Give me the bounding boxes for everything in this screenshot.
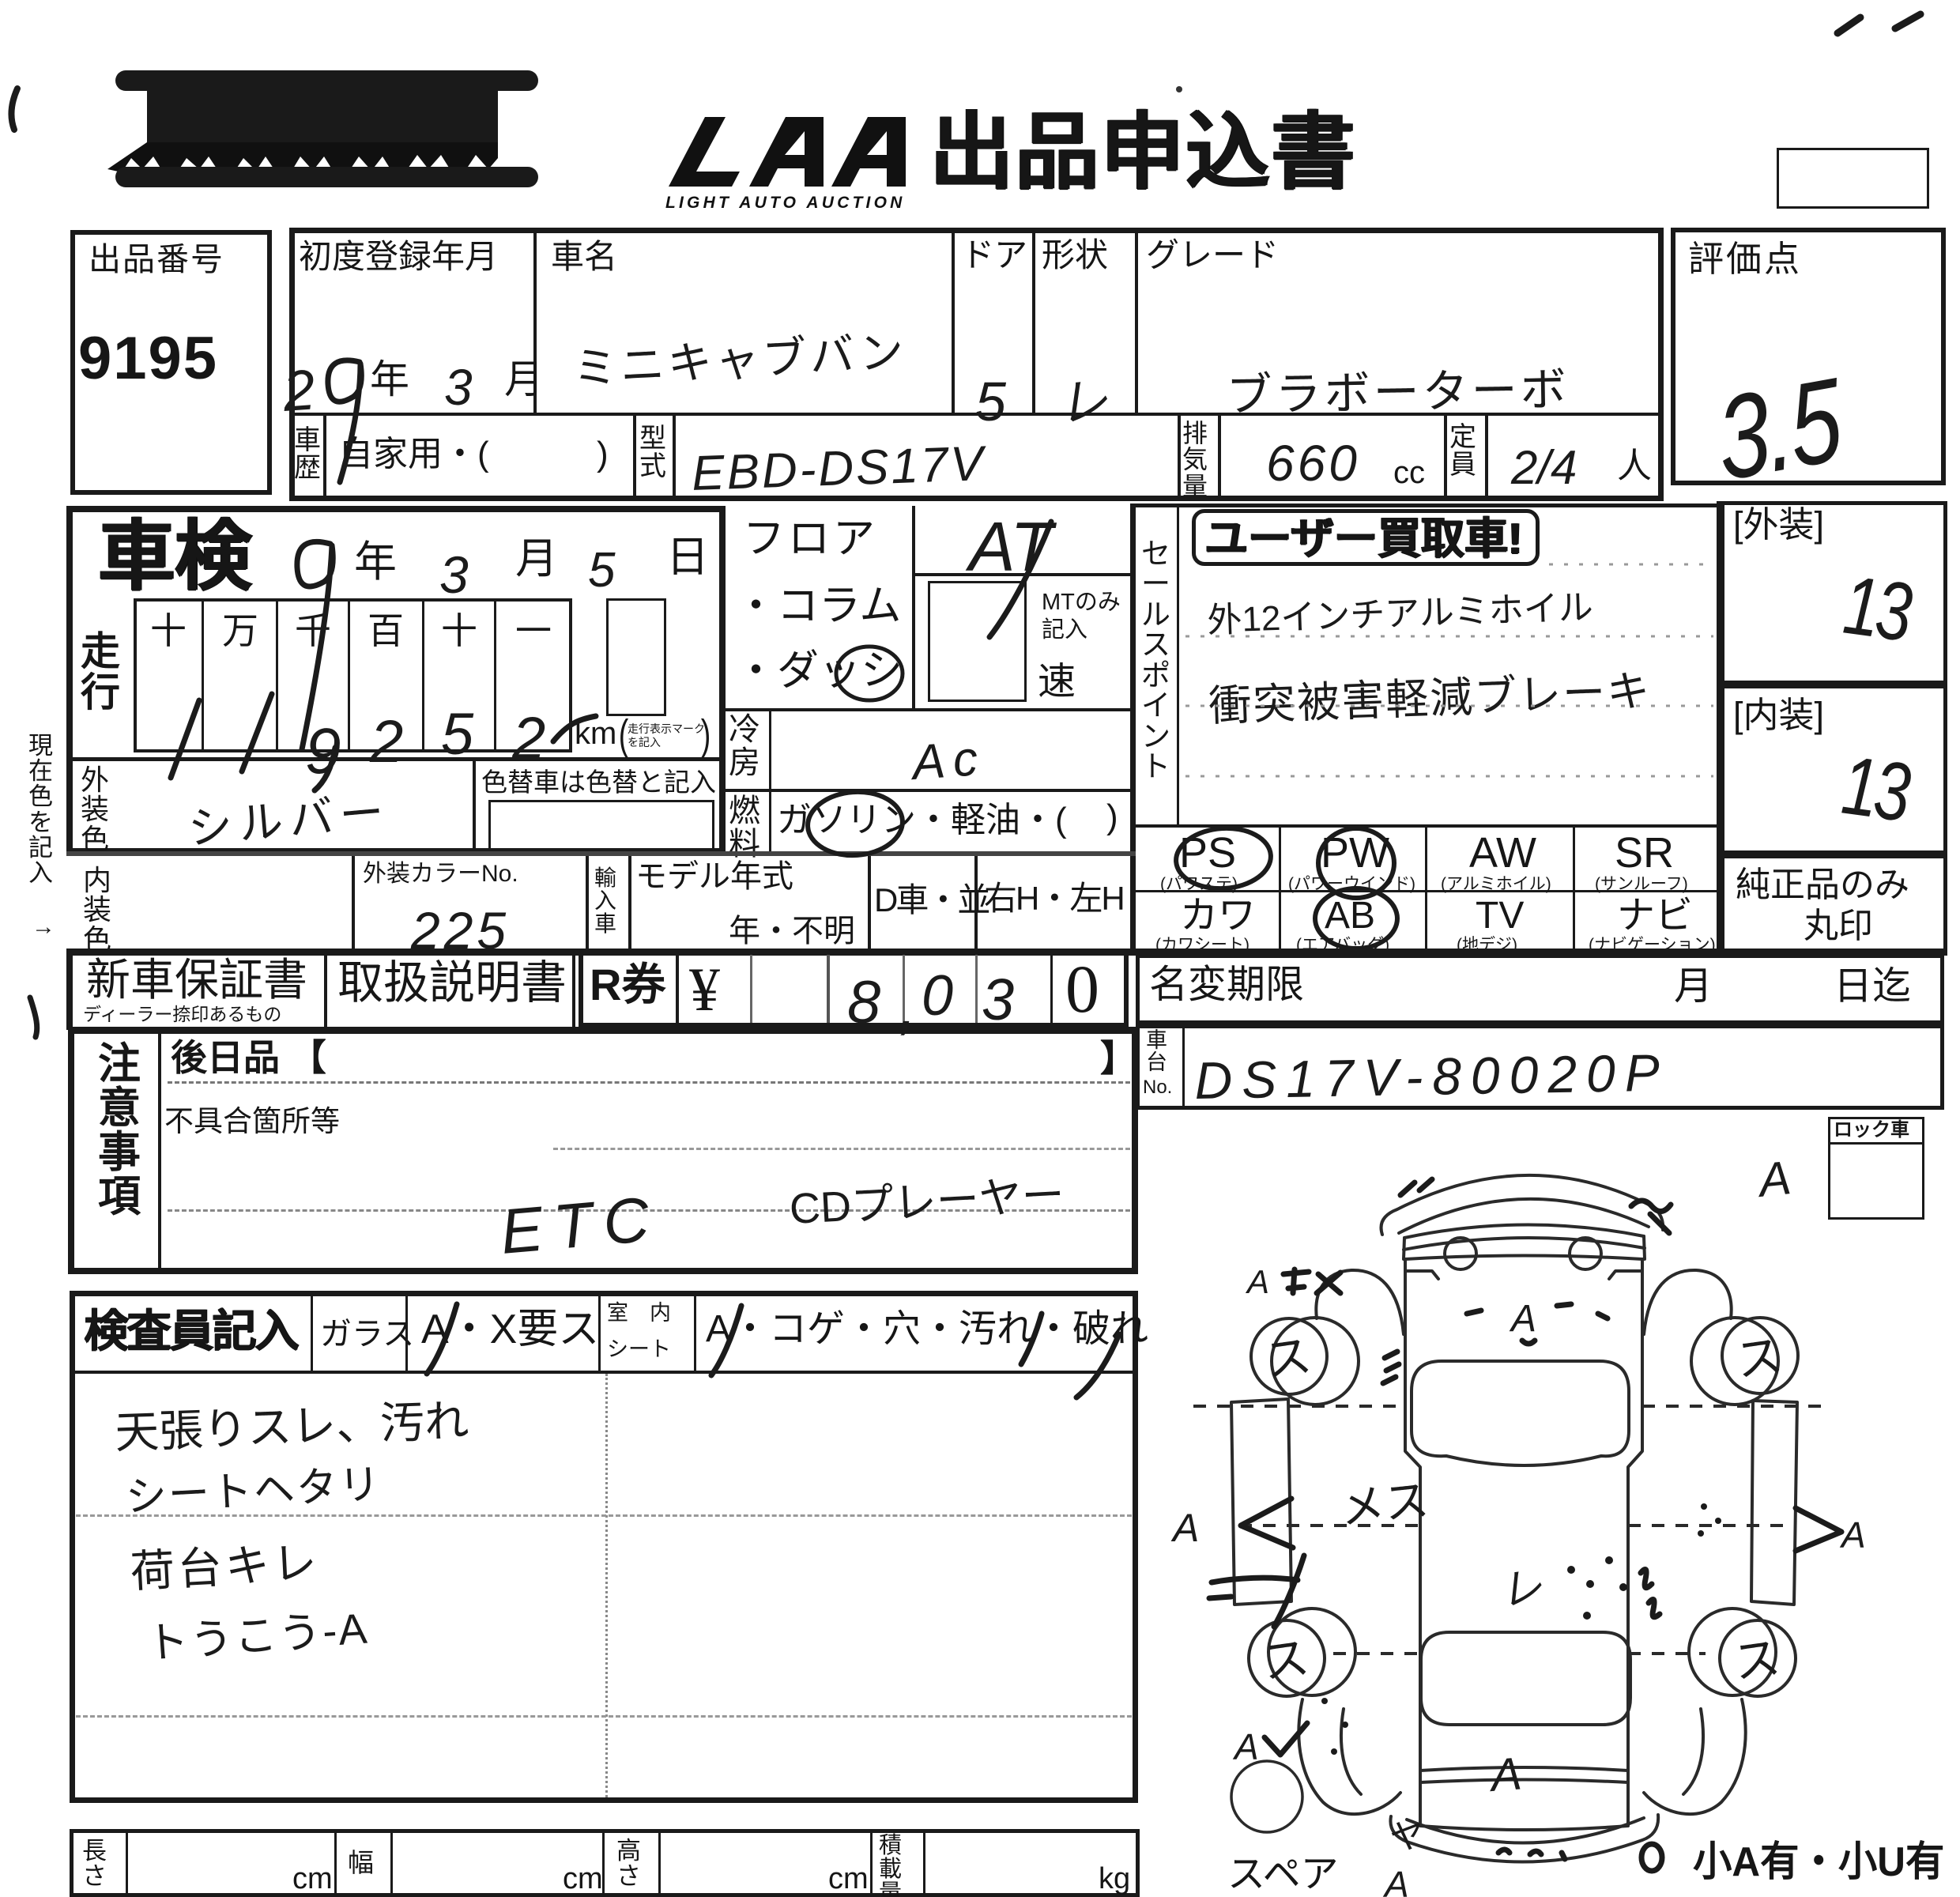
svg-text:A: A (1754, 1151, 1793, 1207)
svg-text:3: 3 (444, 359, 473, 416)
svg-text:5: 5 (975, 371, 1007, 432)
svg-text:3.5: 3.5 (1711, 352, 1849, 506)
svg-text:A: A (1232, 1726, 1259, 1767)
svg-text:シルバー: シルバー (187, 786, 393, 854)
svg-text:EBD-DS17V: EBD-DS17V (691, 436, 988, 501)
svg-text:レ: レ (1496, 1563, 1545, 1616)
svg-text:レ: レ (1054, 371, 1110, 433)
svg-text:トうこう-A: トうこう-A (145, 1605, 370, 1668)
svg-text:A: A (1839, 1514, 1866, 1556)
svg-text:13: 13 (1838, 738, 1913, 839)
svg-text:ス: ス (1733, 1329, 1785, 1386)
svg-text:2: 2 (281, 358, 318, 424)
svg-text:5: 5 (441, 701, 474, 767)
svg-text:ミニキャブバン: ミニキャブバン (571, 326, 908, 394)
svg-text:外12インチアルミホイル: 外12インチアルミホイル (1207, 588, 1594, 640)
svg-text:ス: ス (1731, 1631, 1783, 1688)
svg-text:Ac: Ac (907, 731, 987, 791)
svg-text:シートヘタリ: シートヘタリ (125, 1461, 383, 1521)
svg-text:ヤ: ヤ (1387, 1815, 1428, 1859)
svg-text:8: 8 (847, 969, 880, 1036)
svg-text:A: A (1170, 1506, 1199, 1550)
svg-text:A: A (1245, 1263, 1269, 1300)
svg-text:2: 2 (369, 708, 403, 775)
svg-text:13: 13 (1840, 558, 1915, 659)
svg-text:2/4: 2/4 (1510, 441, 1577, 494)
svg-text:2: 2 (511, 705, 545, 772)
svg-text:DS17V-80020P: DS17V-80020P (1194, 1043, 1669, 1110)
svg-text:ス: ス (1260, 1631, 1312, 1688)
svg-text:CDプレーヤー: CDプレーヤー (788, 1171, 1065, 1233)
svg-text:A: A (1487, 1748, 1523, 1801)
svg-text:ブラボーターボ: ブラボーターボ (1226, 364, 1570, 421)
svg-text:225: 225 (410, 901, 510, 960)
svg-text:0: 0 (922, 964, 953, 1028)
svg-text:5: 5 (588, 543, 616, 598)
svg-text:天張りスレ、汚れ: 天張りスレ、汚れ (114, 1395, 469, 1458)
svg-text:,: , (899, 974, 916, 1041)
svg-text:荷台キレ: 荷台キレ (129, 1537, 321, 1597)
svg-text:3: 3 (439, 545, 469, 604)
svg-text:ETC: ETC (498, 1183, 663, 1267)
svg-text:ス: ス (1262, 1329, 1314, 1386)
svg-text:メス: メス (1338, 1475, 1431, 1533)
svg-text:660: 660 (1266, 435, 1360, 492)
svg-text:A: A (1382, 1864, 1409, 1897)
svg-text:衝突被害軽減ブレーキ: 衝突被害軽減ブレーキ (1208, 667, 1652, 730)
svg-text:A: A (1509, 1298, 1536, 1340)
svg-text:3: 3 (982, 967, 1014, 1032)
